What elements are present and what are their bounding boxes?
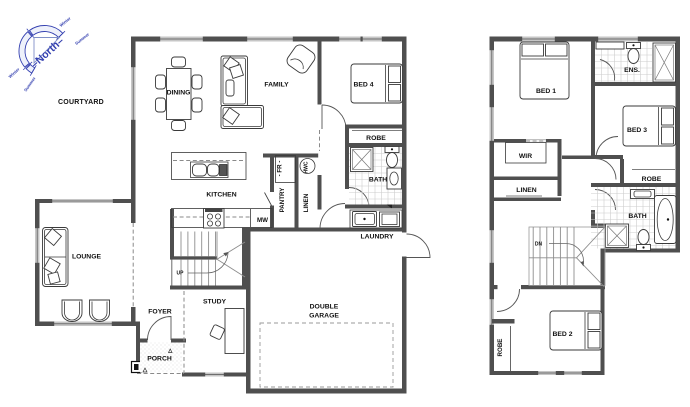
svg-text:BATH: BATH [369,177,387,184]
svg-text:BED 3: BED 3 [627,127,647,134]
svg-text:WIR: WIR [519,153,532,160]
svg-text:GARAGE: GARAGE [309,313,339,320]
svg-text:LAUNDRY: LAUNDRY [361,234,394,241]
svg-text:PORCH: PORCH [147,356,172,363]
svg-text:ROBE: ROBE [366,135,386,142]
svg-text:DN: DN [535,242,543,248]
svg-text:BATH: BATH [628,213,646,220]
svg-text:FOYER: FOYER [148,309,172,316]
svg-text:FAMILY: FAMILY [264,82,289,89]
svg-text:ROBE: ROBE [642,176,662,183]
svg-text:ROBE: ROBE [497,339,504,357]
svg-text:HWC: HWC [304,161,310,173]
svg-text:BED 4: BED 4 [353,82,373,89]
svg-text:DINING: DINING [167,90,191,97]
svg-text:STUDY: STUDY [203,299,227,306]
svg-text:KITCHEN: KITCHEN [206,192,236,199]
svg-text:COURTYARD: COURTYARD [58,99,104,106]
svg-text:BED 2: BED 2 [552,331,572,338]
svg-text:LOUNGE: LOUNGE [72,254,102,261]
svg-text:UP: UP [177,271,185,277]
svg-text:DOUBLE: DOUBLE [310,304,339,311]
svg-text:PANTRY: PANTRY [279,187,286,213]
svg-text:MW: MW [257,217,268,224]
svg-text:LINEN: LINEN [303,193,310,212]
svg-text:ENS.: ENS. [624,67,640,74]
svg-text:BED 1: BED 1 [536,88,556,95]
svg-text:- FR -: - FR - [277,161,284,177]
svg-text:LINEN: LINEN [516,187,536,194]
